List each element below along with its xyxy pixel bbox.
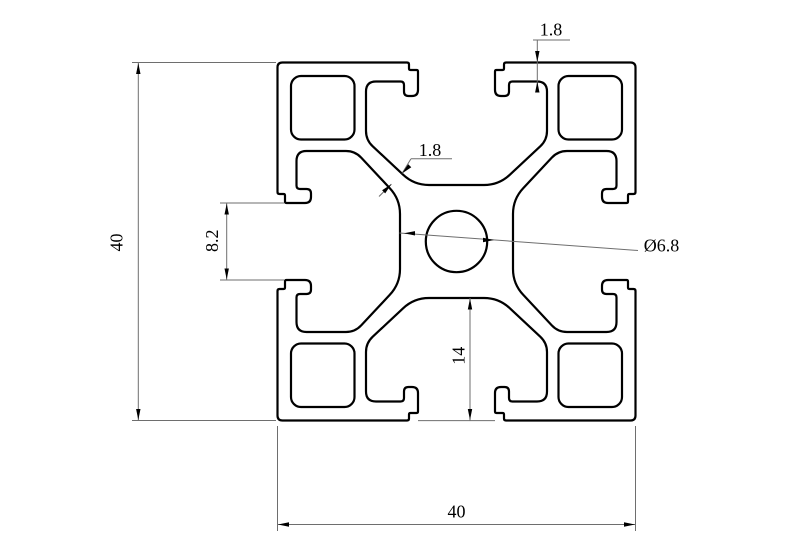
dimension-arrowhead-slot-opening-top [225, 204, 229, 215]
dim-slot-opening-label: 8.2 [202, 230, 222, 253]
drawing-sheet: 40 40 8.2 1.8 1.8 Ø6.8 14 [0, 0, 804, 557]
dim-overall-height-label: 40 [107, 234, 127, 252]
corner-cavity-3 [559, 344, 623, 408]
dim-face-wall-thickness-label: 1.8 [540, 20, 563, 40]
dimension-arrowhead-width-left [278, 522, 289, 526]
dim-slot-depth-label: 14 [449, 347, 469, 365]
corner-cavity-2 [291, 344, 355, 408]
dim-overall-width-label: 40 [448, 502, 466, 522]
dimension-arrowhead-slot-depth-top [468, 299, 472, 310]
technical-drawing-canvas: 40 40 8.2 1.8 1.8 Ø6.8 14 [0, 0, 804, 557]
dim-web-thickness-label: 1.8 [419, 140, 442, 160]
corner-cavity-0 [291, 76, 355, 140]
dim-center-hole-diameter-label: Ø6.8 [644, 236, 680, 256]
dimension-arrowhead-face-wall-upper [535, 51, 539, 62]
extrusion-profile [278, 63, 636, 421]
dimension-arrowhead-height-top [136, 63, 140, 74]
center-hole [426, 211, 487, 272]
dimension-arrowhead-slot-depth-bottom [468, 409, 472, 420]
corner-cavity-1 [559, 76, 623, 140]
dimension-arrowhead-slot-opening-bottom [225, 269, 229, 280]
dimension-arrowhead-width-right [624, 522, 635, 526]
dimension-arrowhead-face-wall-lower [535, 82, 539, 93]
dimension-arrowhead-height-bottom [136, 409, 140, 420]
